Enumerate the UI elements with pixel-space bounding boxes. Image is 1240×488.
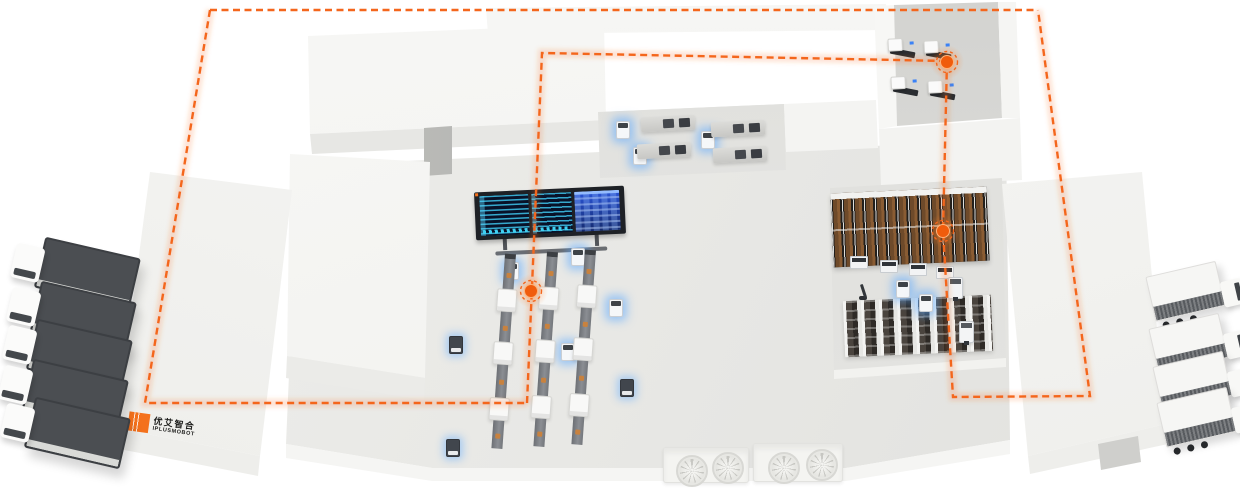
pallet-item [495,433,500,438]
cnc-machine [927,79,956,104]
machining-station [641,115,696,133]
machine-unit [492,341,514,365]
pallet-item [548,270,553,275]
cnc-head [923,40,939,54]
pallet-item [586,268,591,273]
docked-agv-robot [909,263,927,276]
agv-robot [620,379,634,397]
pallet-item [575,429,580,434]
conveyor-segment [540,309,553,340]
machine-unit [530,395,552,419]
machining-station [713,146,768,164]
cnc-head [890,76,906,90]
cnc-machine [887,37,916,62]
machining-station [711,120,766,138]
pallet-item [502,325,507,330]
truck-wheel [1200,441,1208,449]
conveyor-segment [498,311,511,342]
pallet-item [540,377,545,382]
cnc-indicator [910,41,914,44]
cnc-indicator [946,43,950,46]
conveyor-segment [536,362,549,396]
cnc-machine [890,75,919,100]
conveyor-segment [544,252,557,288]
pallet-item [498,379,503,384]
cnc-indicator [950,83,954,86]
machine-unit [572,337,594,361]
agv-robot [896,280,910,298]
agv-robot [446,439,460,457]
truck-windshield [1234,282,1240,301]
docked-agv-robot [850,256,868,269]
pallet-item [506,272,511,277]
truck-cargo-box [1145,261,1226,322]
fan-vent-icon [806,449,838,481]
hvac-unit [753,443,843,482]
truck-windshield [3,428,26,440]
pallet-item [578,375,583,380]
conveyor-segment [502,254,515,290]
machine-unit [488,397,510,421]
conveyor-segment [574,360,587,394]
agv-robot [609,299,623,317]
agv-robot [616,121,630,139]
machine-unit [568,393,590,417]
agv-robot [919,294,933,312]
machining-station [637,142,692,160]
cnc-head [927,80,943,94]
fan-vent-icon [676,455,708,487]
agv-robot [449,336,463,354]
machine-unit [534,339,556,363]
conveyor-segment [582,250,595,286]
conveyor-segment [571,416,584,445]
truck-wheel [1187,444,1195,452]
conveyor-segment [494,364,507,398]
pallet-item [537,431,542,436]
cnc-head [887,38,903,52]
production-line [486,253,520,449]
factory-scene: 优艾智合 IPLUSMOBOT [0,0,1240,488]
cnc-machine [923,39,952,64]
fan-vent-icon [768,452,800,484]
robot-arm [855,284,871,302]
forklift-robot [959,321,974,343]
machine-unit [576,284,598,308]
conveyor-segment [491,420,504,449]
machine-unit [496,288,518,312]
production-line [528,251,562,447]
conveyor-segment [578,307,591,338]
truck-wheel [1173,447,1181,455]
conveyor-segment [533,418,546,447]
hvac-unit [663,447,749,483]
fan-vent-icon [712,452,744,484]
equipment-layer [0,0,1240,488]
pallet-item [544,323,549,328]
machine-unit [538,286,560,310]
pallet-item [582,321,587,326]
docked-agv-robot [880,260,898,273]
forklift-robot [948,277,963,299]
cnc-indicator [913,79,917,82]
